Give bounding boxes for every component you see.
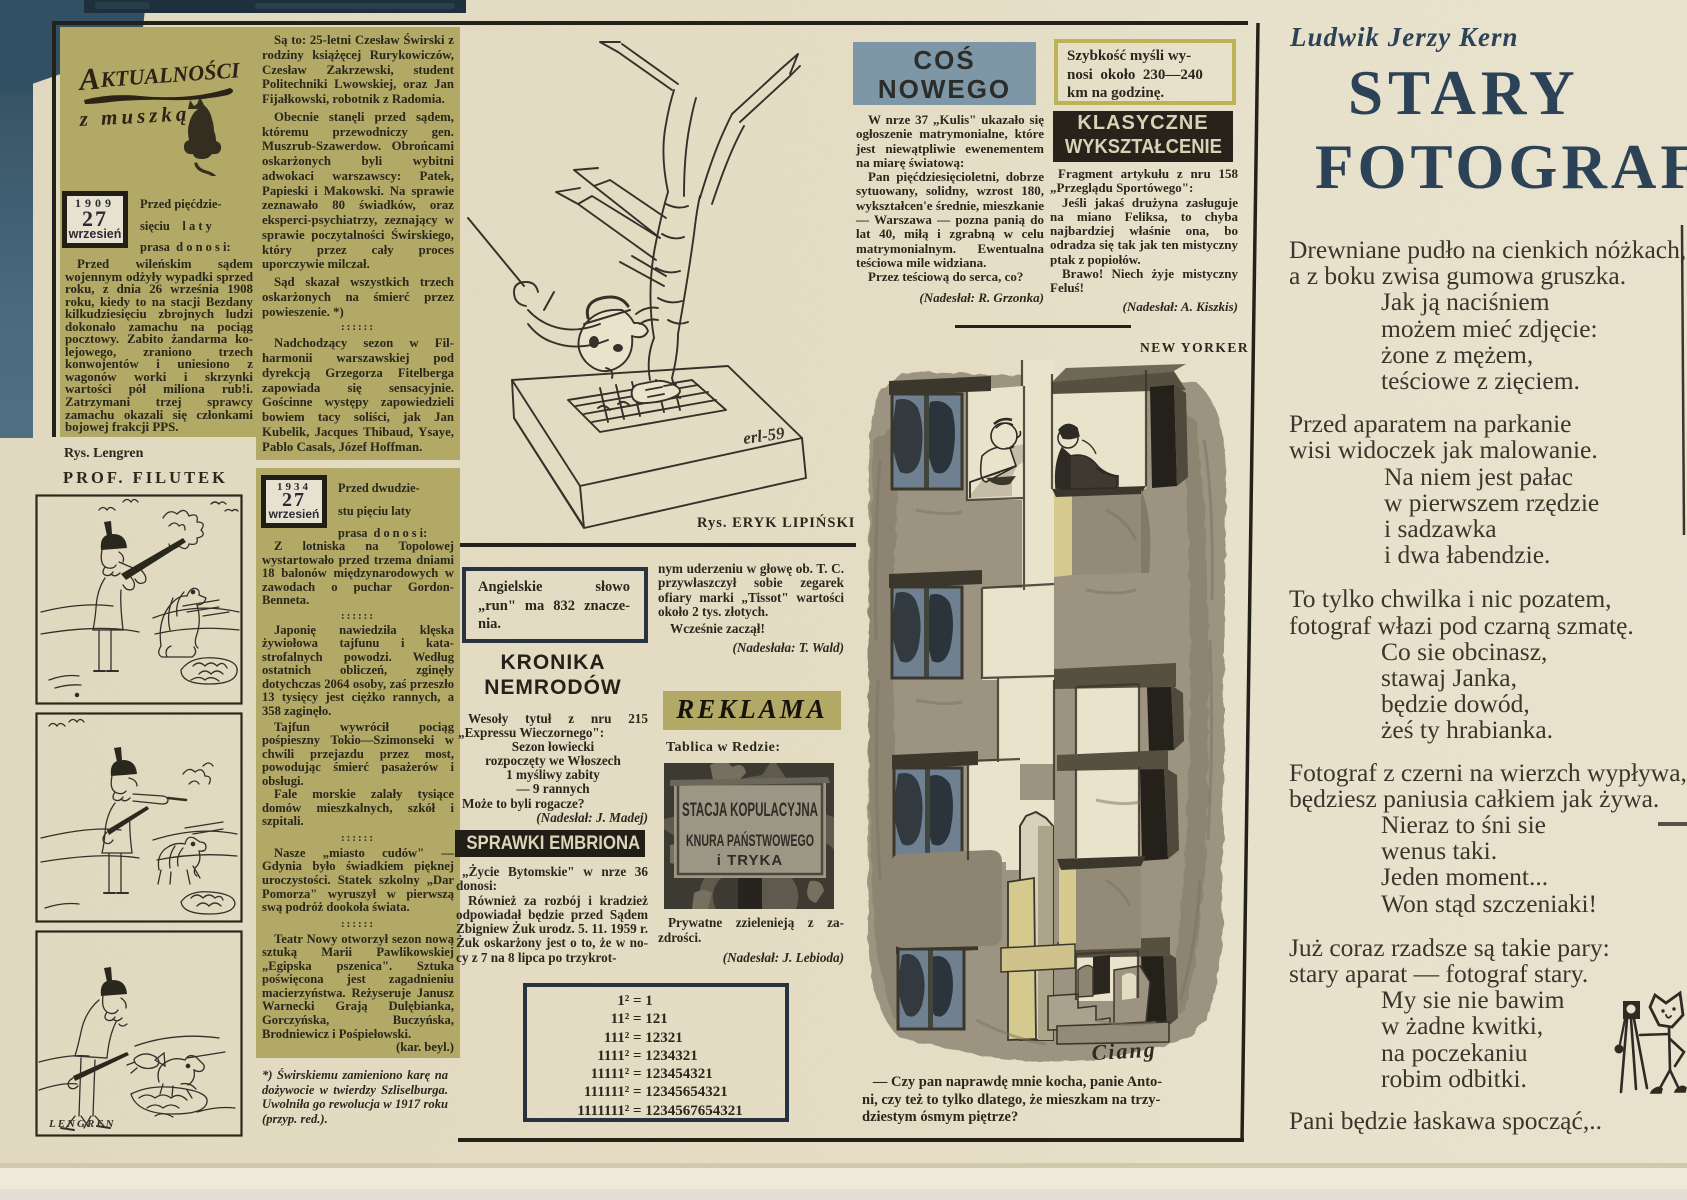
svg-text:KNURA PAŃSTWOWEGO: KNURA PAŃSTWOWEGO — [686, 831, 814, 850]
svg-text:KTUALNOŚCI: KTUALNOŚCI — [99, 57, 242, 92]
svg-text:LENGREN: LENGREN — [48, 1118, 116, 1130]
svg-text:erl-59: erl-59 — [742, 423, 786, 448]
svg-text:Ciang: Ciang — [1091, 1037, 1157, 1065]
svg-text:z muszką: z muszką — [78, 101, 191, 131]
svg-text:STACJA KOPULACYJNA: STACJA KOPULACYJNA — [682, 800, 818, 821]
svg-text:i TRYKA: i TRYKA — [717, 852, 783, 869]
svg-text:A: A — [76, 61, 101, 97]
